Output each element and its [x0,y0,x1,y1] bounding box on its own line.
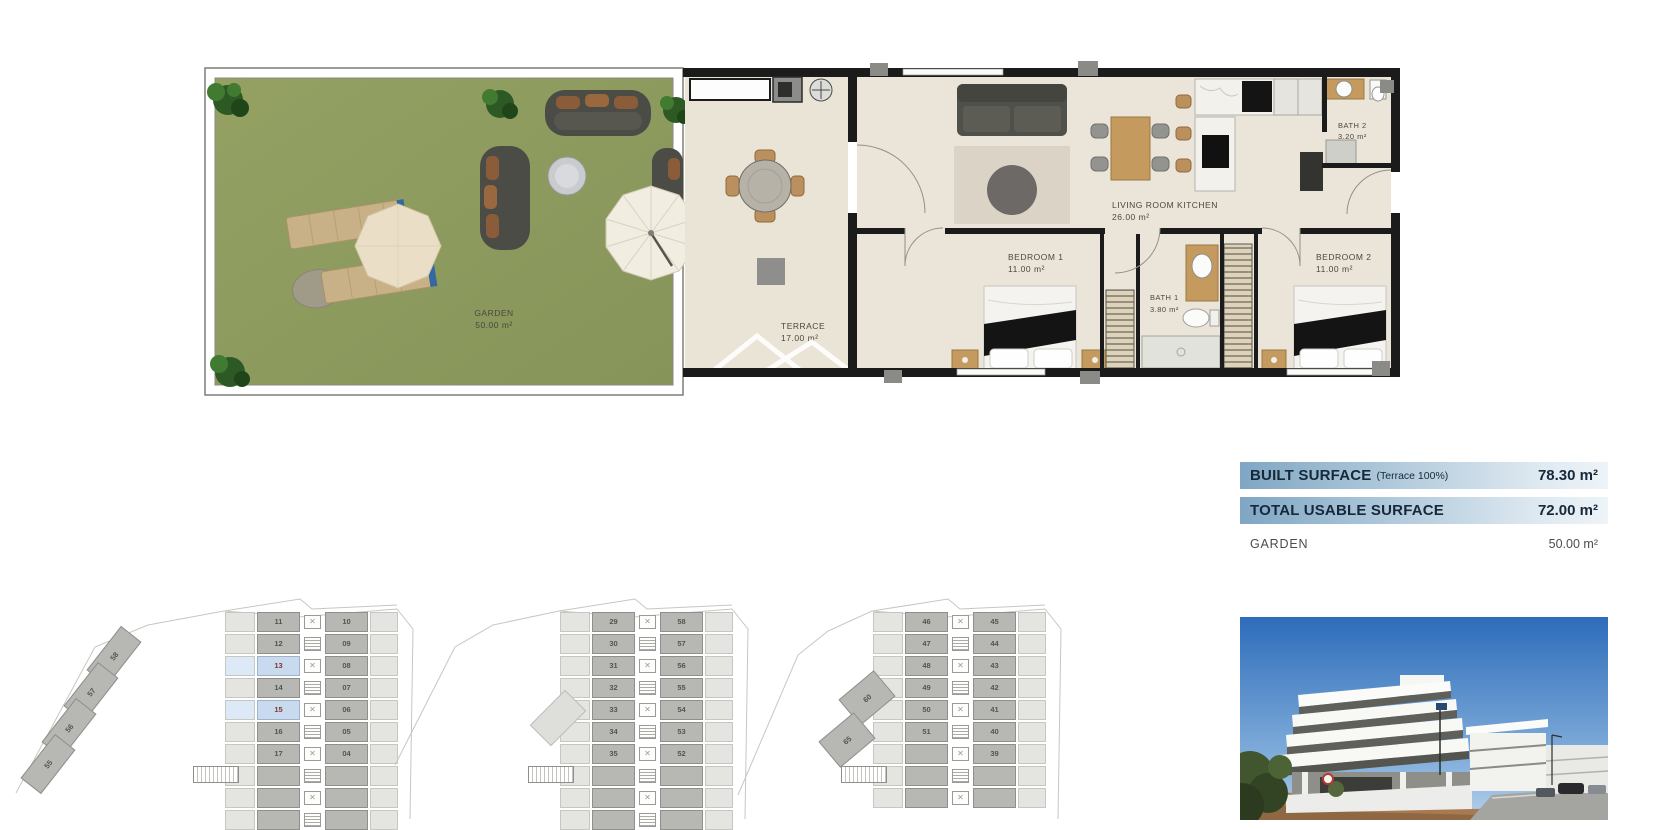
balcony-cell [1018,634,1046,654]
unit-number: 51 [922,728,930,736]
garden-label: GARDEN [474,308,513,318]
bedroom1-label: BEDROOM 1 [1008,252,1064,262]
unit-cell [257,810,300,830]
stairs-icon [304,725,321,739]
unit-number: 17 [274,750,282,758]
elevator-icon: ✕ [304,703,321,717]
balcony-cell [1018,612,1046,632]
unit-number: 33 [609,706,617,714]
terrace-planter-box [757,258,785,285]
balcony-cell [873,744,903,764]
bath2-label: BATH 2 [1338,121,1367,130]
balcony-cell [873,722,903,742]
garden-area-label: 50.00 m² [475,320,513,330]
terrace-area: TERRACE 17.00 m² [685,77,855,375]
bath1-label: BATH 1 [1150,293,1179,302]
surface-table: BUILT SURFACE (Terrace 100%) 78.30 m² TO… [1240,462,1608,565]
balcony-cell [225,788,255,808]
building-photo [1240,617,1608,820]
unit-number: 29 [609,618,617,626]
table-row-built-surface: BUILT SURFACE (Terrace 100%) 78.30 m² [1240,462,1608,489]
balcony-cell [560,612,590,632]
unit-cell: 12 [257,634,300,654]
unit-cell: 50 [905,700,948,720]
ramp-structure [528,766,574,783]
balcony-cell [560,810,590,830]
unit-cell: 35 [592,744,635,764]
garden-side-table [548,157,586,195]
unit-number: 55 [42,758,54,770]
unit-number: 42 [990,684,998,692]
unit-number: 50 [922,706,930,714]
balcony-cell [1018,678,1046,698]
unit-number: 15 [274,706,282,714]
elevator-icon: ✕ [304,659,321,673]
unit-cell [973,766,1016,786]
stairs-icon [304,769,321,783]
living-label: LIVING ROOM KITCHEN [1112,200,1218,210]
unit-cell: 17 [257,744,300,764]
garden-sofa-vertical [480,146,530,250]
unit-cell: 29 [592,612,635,632]
unit-number: 57 [85,686,97,698]
elevator-icon: ✕ [952,747,969,761]
unit-cell [973,788,1016,808]
brochure-page: GARDEN 50.00 m² TERRACE 17.00 m² [0,0,1668,820]
unit-number: 56 [63,722,75,734]
balcony-cell [225,810,255,830]
elevator-icon: ✕ [952,615,969,629]
unit-cell [257,788,300,808]
unit-number: 12 [274,640,282,648]
unit-number: 46 [922,618,930,626]
elevator-icon: ✕ [304,791,321,805]
unit-cell: 14 [257,678,300,698]
garden-surface-label: GARDEN [1250,537,1308,551]
stairs-icon [952,725,969,739]
unit-number: 39 [990,750,998,758]
balcony-cell [1018,766,1046,786]
balcony-cell [560,634,590,654]
bedroom1-area-label: 11.00 m² [1008,264,1045,274]
garden-sofa-top [545,90,651,136]
unit-cell: 39 [973,744,1016,764]
unit-cell: 16 [257,722,300,742]
unit-cell: 42 [973,678,1016,698]
unit-cell: 47 [905,634,948,654]
elevator-icon: ✕ [952,659,969,673]
unit-number: 32 [609,684,617,692]
unit-cell: 45 [973,612,1016,632]
unit-number: 16 [274,728,282,736]
balcony-cell [225,700,255,720]
unit-cell: 46 [905,612,948,632]
unit-cell [592,766,635,786]
interior-area: LIVING ROOM KITCHEN 26.00 m² BEDROOM 1 1… [857,77,1391,372]
balcony-cell [560,788,590,808]
elevator-icon: ✕ [952,791,969,805]
balcony-cell [225,678,255,698]
unit-cell: 43 [973,656,1016,676]
apartment-floorplan: GARDEN 50.00 m² TERRACE 17.00 m² [0,0,1668,430]
unit-cell [905,766,948,786]
balcony-cell [560,656,590,676]
unit-cell: 15 [257,700,300,720]
unit-cell: 49 [905,678,948,698]
balcony-cell [225,744,255,764]
white-umbrella [606,186,696,280]
unit-cell: 30 [592,634,635,654]
balcony-cell [225,656,255,676]
unit-number: 43 [990,662,998,670]
garden-area: GARDEN 50.00 m² [205,68,696,395]
ramp-structure [841,766,887,783]
unit-number: 48 [922,662,930,670]
balcony-cell [1018,788,1046,808]
living-area-label: 26.00 m² [1112,212,1150,222]
stairs-icon [304,637,321,651]
unit-number: 14 [274,684,282,692]
balcony-cell [1018,656,1046,676]
wardrobe-2 [1224,244,1252,368]
balcony-cell [873,612,903,632]
unit-number: 45 [990,618,998,626]
wardrobe-1 [1106,290,1134,370]
unit-cell: 11 [257,612,300,632]
unit-cell: 48 [905,656,948,676]
balcony-cell [873,656,903,676]
unit-number: 13 [274,662,282,670]
unit-number: 41 [990,706,998,714]
garden-surface-value: 50.00 m² [1549,537,1598,551]
site-plan-3: 4645✕47444843✕49425041✕514039✕✕ 6065 [648,585,1068,820]
unit-cell: 44 [973,634,1016,654]
elevator-icon: ✕ [952,703,969,717]
unit-number: 49 [922,684,930,692]
usable-surface-value: 72.00 m² [1538,502,1598,519]
elevator-icon: ✕ [304,615,321,629]
unit-number: 34 [609,728,617,736]
balcony-cell [873,788,903,808]
unit-cell: 13 [257,656,300,676]
photo-main-building [1280,675,1472,813]
unit-cell [257,766,300,786]
ramp-structure [193,766,239,783]
stairs-icon [952,637,969,651]
unit-cell: 51 [905,722,948,742]
stairs-icon [304,813,321,827]
stairs-icon [952,681,969,695]
unit-cell [592,788,635,808]
beige-parasol [355,204,441,288]
bath1-area-label: 3.80 m² [1150,305,1179,314]
bath2-area-label: 3.20 m² [1338,132,1367,141]
built-surface-value: 78.30 m² [1538,467,1598,484]
balcony-cell [1018,722,1046,742]
balcony-cell [1018,700,1046,720]
unit-cell: 33 [592,700,635,720]
unit-cell: 31 [592,656,635,676]
built-surface-label: BUILT SURFACE [1250,467,1372,484]
unit-cell [905,744,948,764]
terrace-label: TERRACE [781,321,825,331]
table-row-garden: GARDEN 50.00 m² [1240,530,1608,557]
elevator-icon: ✕ [304,747,321,761]
unit-cell: 34 [592,722,635,742]
balcony-cell [873,634,903,654]
unit-cell: 40 [973,722,1016,742]
unit-number: 60 [861,692,873,704]
balcony-cell [225,612,255,632]
stairs-icon [304,681,321,695]
unit-number: 30 [609,640,617,648]
unit-cell [592,810,635,830]
unit-number: 47 [922,640,930,648]
unit-number: 31 [609,662,617,670]
unit-cell: 32 [592,678,635,698]
balcony-cell [225,634,255,654]
bedroom2-label: BEDROOM 2 [1316,252,1372,262]
unit-cell [905,788,948,808]
balcony-cell [560,744,590,764]
unit-number: 40 [990,728,998,736]
table-row-usable-surface: TOTAL USABLE SURFACE 72.00 m² [1240,497,1608,524]
built-surface-note: (Terrace 100%) [1377,470,1449,482]
unit-number: 11 [275,618,283,626]
unit-number: 58 [108,650,120,662]
stairs-icon [952,769,969,783]
balcony-cell [1018,744,1046,764]
unit-number: 44 [990,640,998,648]
usable-surface-label: TOTAL USABLE SURFACE [1250,502,1444,519]
unit-number: 65 [841,734,853,746]
unit-cell: 41 [973,700,1016,720]
balcony-cell [225,722,255,742]
unit-number: 35 [609,750,617,758]
bedroom2-area-label: 11.00 m² [1316,264,1353,274]
